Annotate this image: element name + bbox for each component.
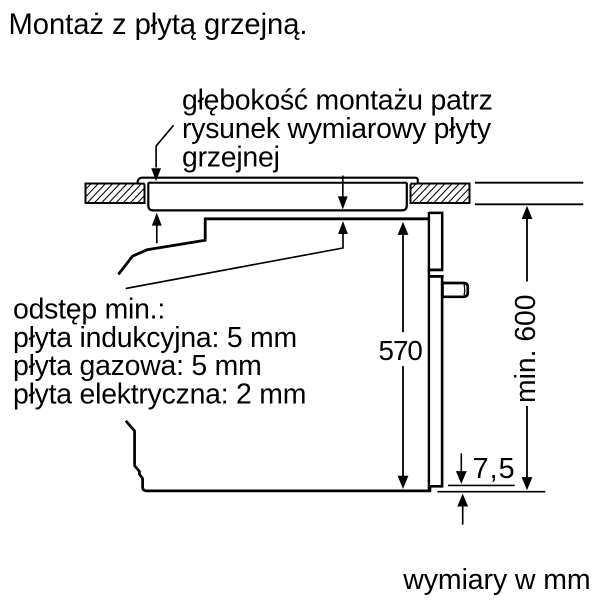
svg-text:min. 600: min. 600 (509, 294, 541, 403)
svg-text:płyta indukcyjna: 5 mm: płyta indukcyjna: 5 mm (13, 322, 297, 354)
svg-text:odstęp min.:: odstęp min.: (13, 293, 165, 325)
svg-text:płyta gazowa: 5 mm: płyta gazowa: 5 mm (13, 350, 262, 382)
svg-text:Montaż z płytą grzejną.: Montaż z płytą grzejną. (9, 9, 308, 41)
svg-text:570: 570 (379, 335, 423, 366)
svg-text:rysunek wymiarowy płyty: rysunek wymiarowy płyty (182, 113, 492, 145)
svg-text:wymiary w mm: wymiary w mm (402, 564, 590, 596)
svg-text:głębokość montażu patrz: głębokość montażu patrz (182, 85, 493, 117)
svg-text:7,5: 7,5 (473, 453, 516, 485)
svg-text:płyta elektryczna: 2 mm: płyta elektryczna: 2 mm (13, 379, 306, 411)
svg-text:grzejnej: grzejnej (182, 141, 280, 173)
